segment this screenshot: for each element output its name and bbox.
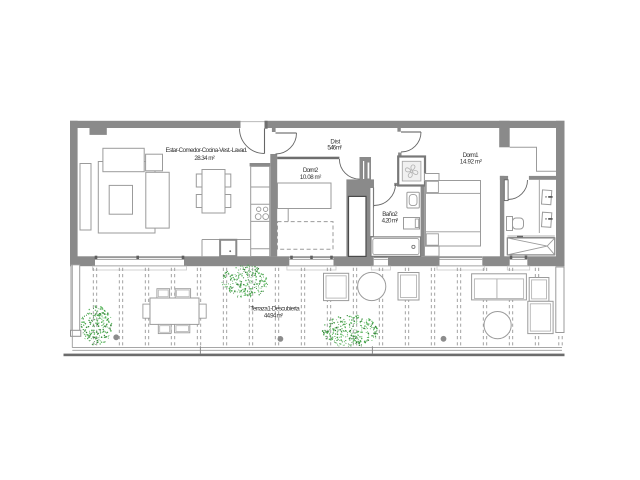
svg-text:Dorm2: Dorm2 <box>303 167 319 174</box>
svg-text:28.34 m²: 28.34 m² <box>194 155 215 162</box>
svg-text:44.94 m²: 44.94 m² <box>264 312 283 319</box>
svg-text:4.20 m²: 4.20 m² <box>382 217 399 224</box>
svg-text:14.92 m²: 14.92 m² <box>460 159 482 166</box>
svg-text:Estar-Comedor-Cocina-Vest.-Lav: Estar-Comedor-Cocina-Vest.-Lavad. <box>166 147 248 154</box>
svg-text:10.08 m²: 10.08 m² <box>300 174 322 181</box>
svg-text:5.46 m²: 5.46 m² <box>327 144 342 151</box>
